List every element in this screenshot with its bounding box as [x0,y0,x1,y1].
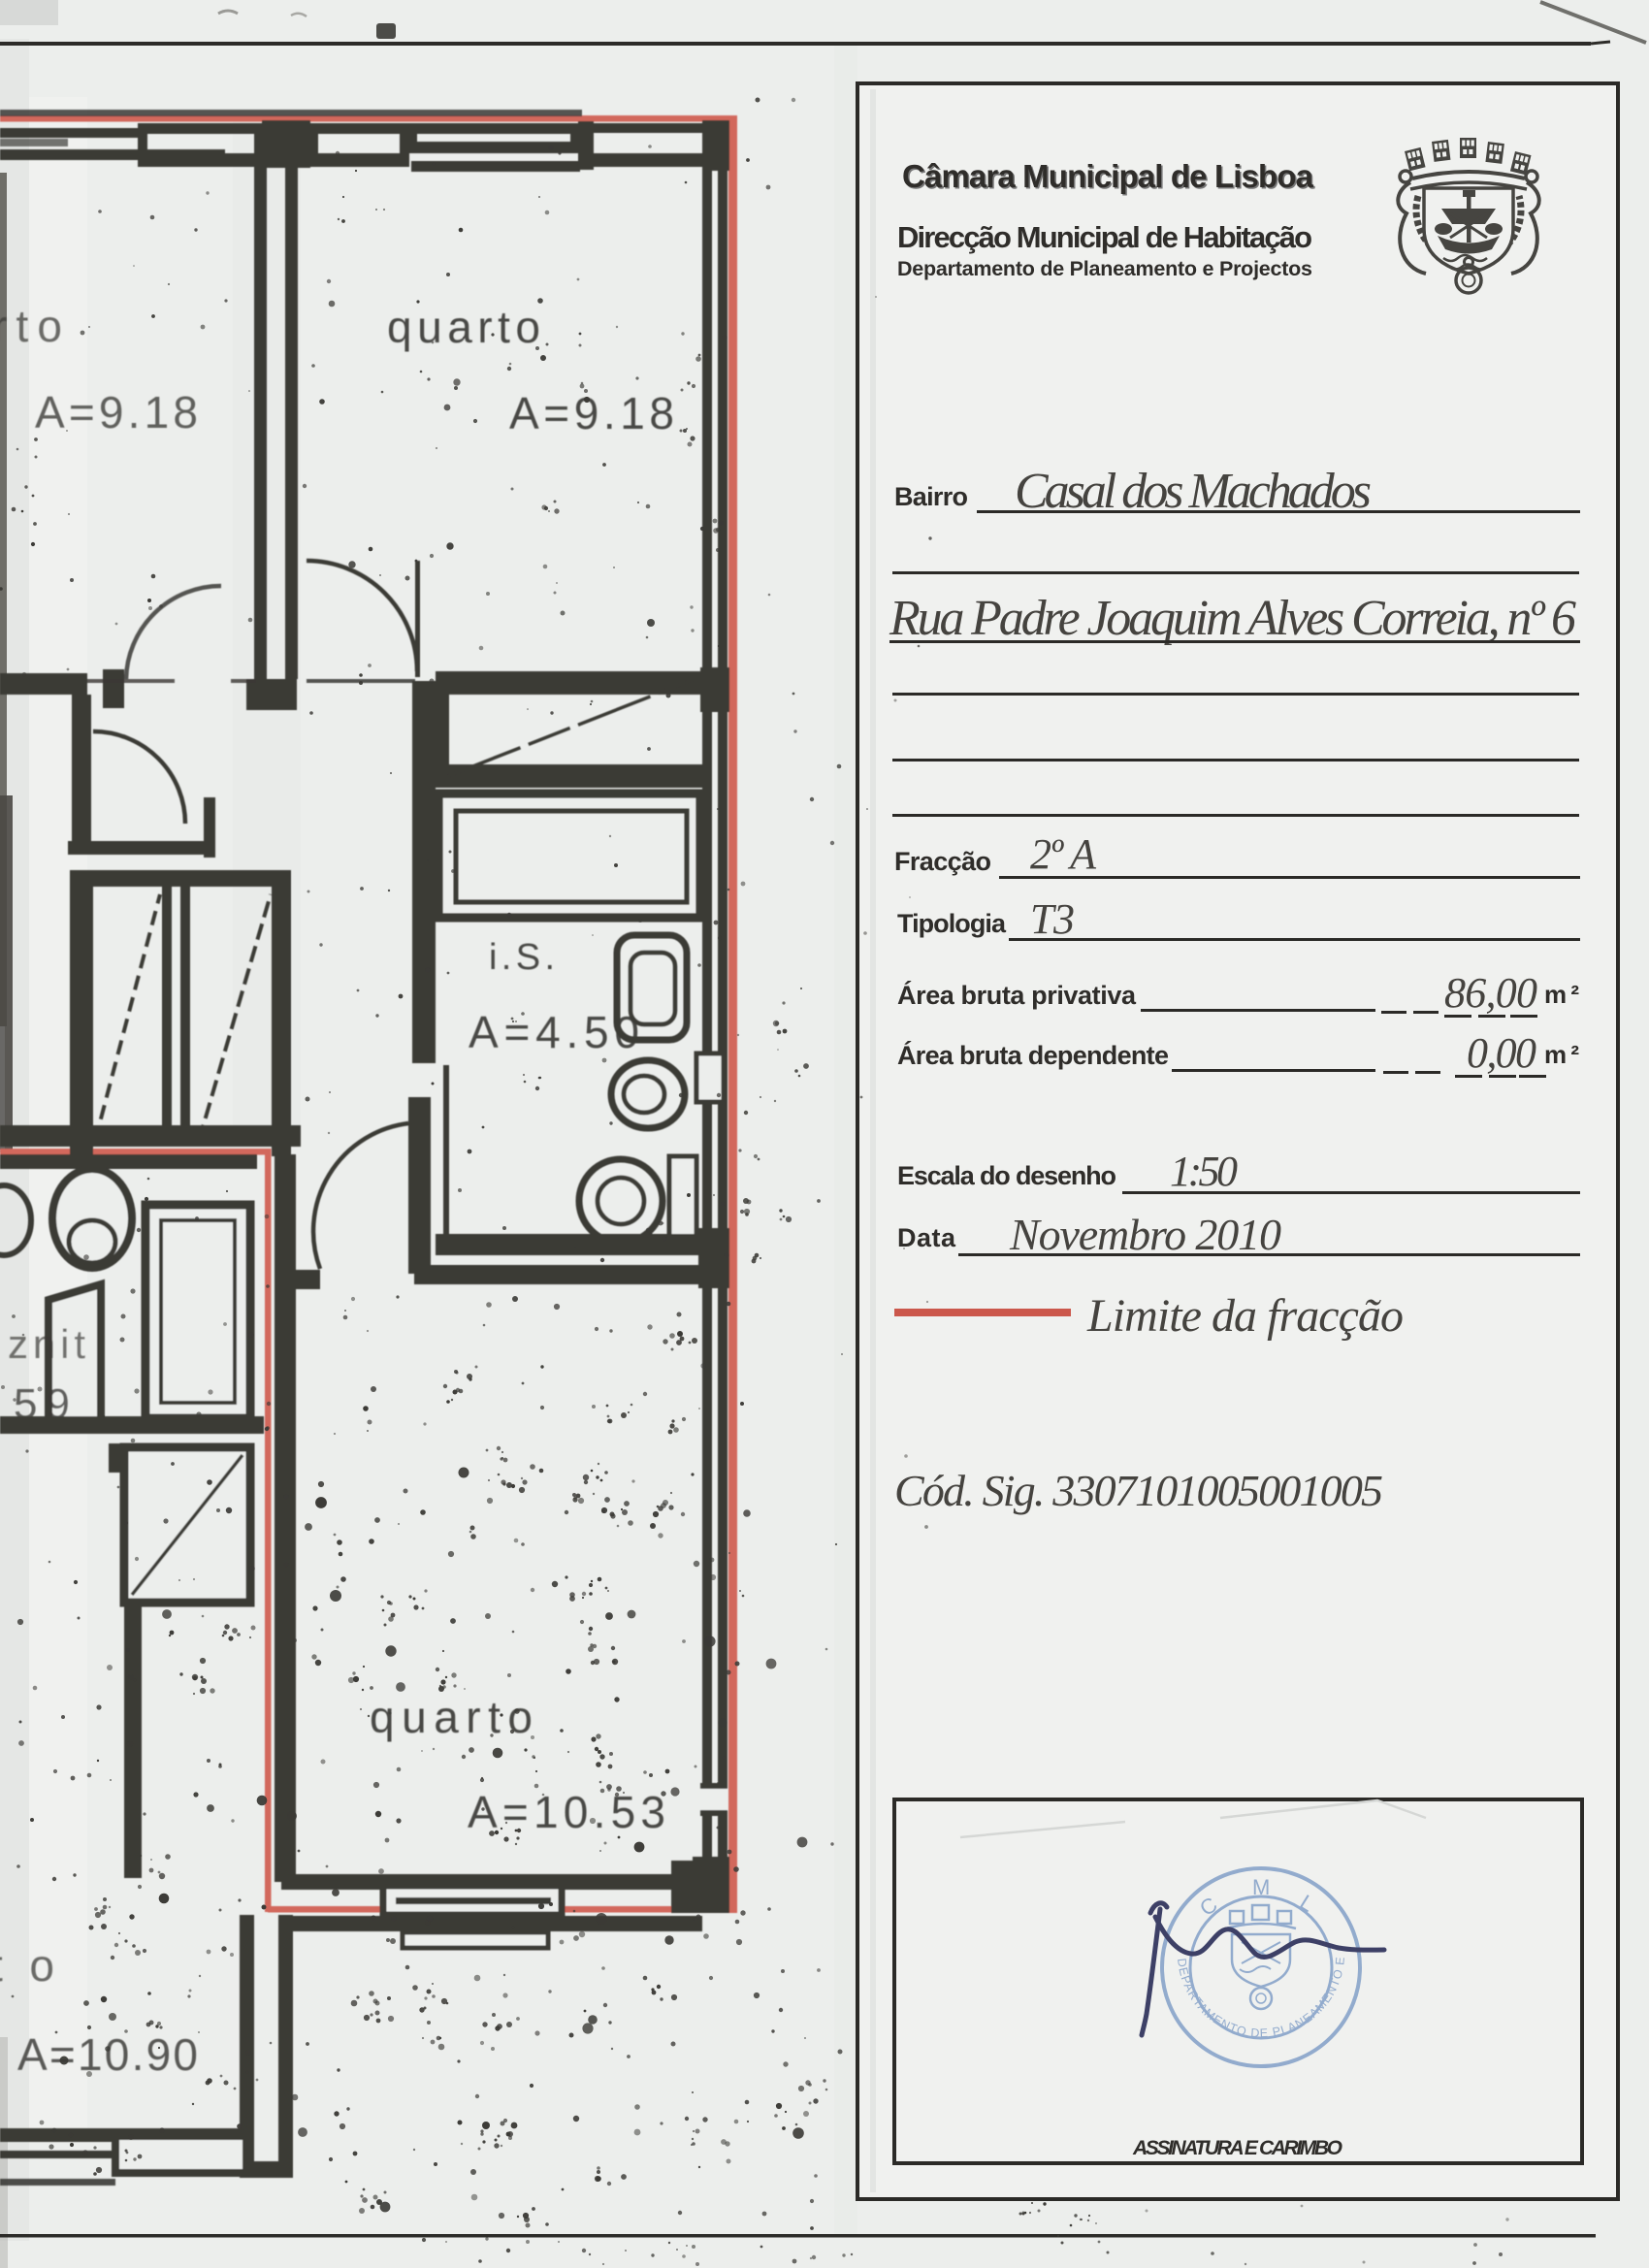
svg-text:Rua Padre Joaquim Alves Correi: Rua Padre Joaquim Alves Correia, nº 6 [889,591,1576,646]
svg-text:Bairro: Bairro [894,482,968,511]
svg-text:Escala do desenho: Escala do desenho [897,1161,1116,1190]
svg-text:M: M [1252,1875,1270,1899]
svg-text:znit: znit [8,1321,85,1367]
svg-text:Limite da fracção: Limite da fracção [1086,1290,1404,1342]
svg-text:Fracção: Fracção [894,847,991,876]
svg-text:Novembro 2010: Novembro 2010 [1009,1210,1281,1259]
svg-text:Cód. Sig. 3307101005001005: Cód. Sig. 3307101005001005 [894,1466,1383,1515]
svg-text:1:50: 1:50 [1170,1148,1238,1195]
svg-text:0,00: 0,00 [1467,1029,1536,1077]
svg-text:Área bruta dependente: Área bruta dependente [897,1040,1169,1070]
svg-text:A=9.18: A=9.18 [35,387,198,437]
svg-text:ASSINATURA E CARIMBO: ASSINATURA E CARIMBO [1132,2137,1342,2159]
svg-text:quarto: quarto [370,1692,533,1742]
svg-text:86,00: 86,00 [1444,969,1537,1017]
svg-text:Câmara Municipal de Lisboa: Câmara Municipal de Lisboa [902,158,1314,194]
svg-text:m²: m² [1544,1040,1579,1069]
svg-text:Data: Data [897,1223,956,1252]
svg-text:Tipologia: Tipologia [897,909,1007,938]
svg-text:T3: T3 [1030,895,1075,943]
svg-text:Departamento de Planeamento e: Departamento de Planeamento e Projectos [897,257,1312,280]
svg-text:A=9.18: A=9.18 [509,388,674,438]
svg-text:m²: m² [1544,980,1579,1009]
svg-text:Direcção Municipal de Habitaçã: Direcção Municipal de Habitação [897,220,1312,254]
svg-text:A=10.90: A=10.90 [17,2029,198,2080]
svg-text:Área bruta privativa: Área bruta privativa [897,980,1137,1010]
svg-text:quarto: quarto [387,302,540,352]
svg-text:2º A: 2º A [1030,830,1097,878]
